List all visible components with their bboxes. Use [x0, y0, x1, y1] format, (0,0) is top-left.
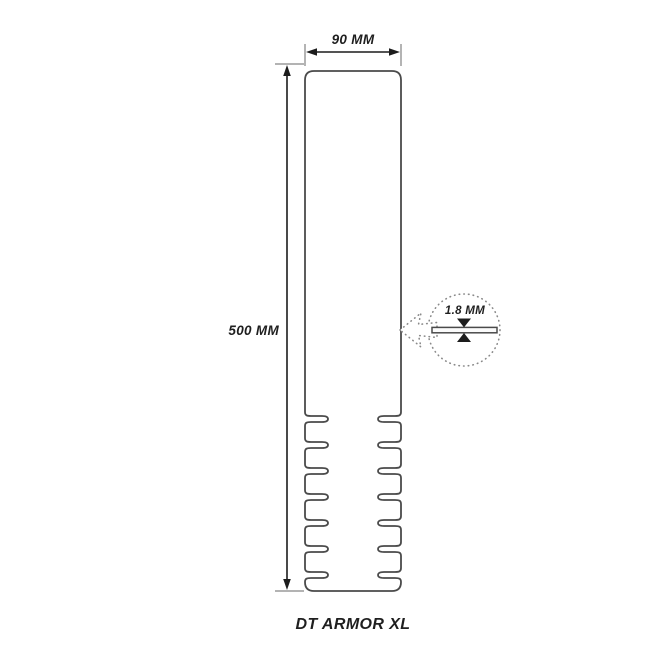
width-dimension-label: 90 MM: [332, 32, 375, 47]
frame-protector-outline: [305, 71, 401, 591]
height-dimension: 500 MM: [228, 64, 304, 591]
material-cross-section: [432, 327, 497, 332]
arrowhead-down-icon: [283, 579, 291, 590]
technical-drawing: 90 MM 500 MM 1.8 MM DT ARMOR XL: [0, 0, 660, 660]
product-title: DT ARMOR XL: [296, 616, 411, 633]
thickness-dimension-label: 1.8 MM: [445, 305, 485, 317]
drawing-canvas: 90 MM 500 MM 1.8 MM DT ARMOR XL: [0, 0, 660, 660]
thickness-detail-callout: 1.8 MM: [400, 294, 500, 366]
height-dimension-label: 500 MM: [228, 323, 279, 338]
arrowhead-up-icon: [283, 65, 291, 76]
arrowhead-left-icon: [306, 48, 317, 56]
width-dimension: 90 MM: [305, 32, 401, 66]
arrowhead-right-icon: [389, 48, 400, 56]
